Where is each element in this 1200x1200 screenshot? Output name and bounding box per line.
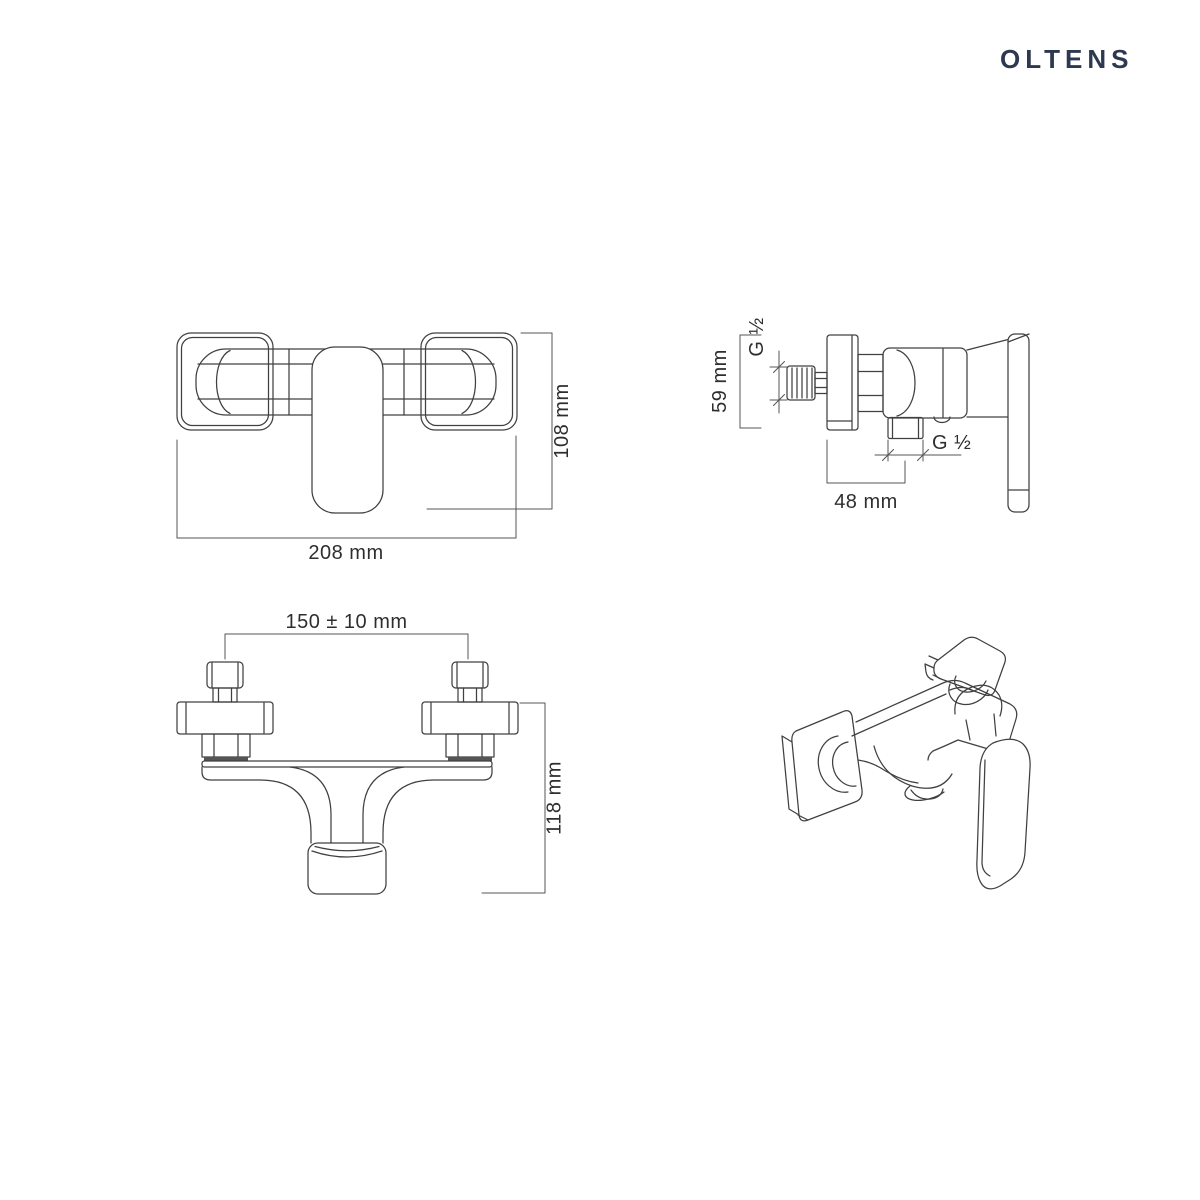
isometric-view-drawing: [740, 615, 1080, 925]
top-view-drawing: 150 ± 10 mm 118 mm: [150, 595, 600, 935]
front-height-label: 108 mm: [551, 383, 573, 458]
top-faucet-outline: [177, 662, 518, 894]
top-depth-label: 118 mm: [544, 761, 566, 835]
front-faucet-outline: [177, 333, 517, 513]
side-view-drawing: 59 mm G ½ G ½ 48 mm: [680, 295, 1080, 560]
side-depth-label: 48 mm: [834, 491, 898, 513]
top-dimensions: 150 ± 10 mm 118 mm: [225, 611, 566, 893]
side-dimensions: 59 mm G ½ G ½ 48 mm: [709, 317, 971, 513]
front-view-drawing: 208 mm 108 mm: [150, 295, 610, 585]
side-faucet-outline: [787, 334, 1029, 512]
brand-logo: OLTENS: [1000, 44, 1134, 75]
front-width-label: 208 mm: [308, 542, 383, 564]
iso-faucet-outline: [782, 637, 1030, 889]
side-inlet-thread-label: G ½: [746, 317, 768, 356]
side-height-label: 59 mm: [709, 349, 731, 413]
top-span-label: 150 ± 10 mm: [285, 611, 407, 633]
product-dimension-sheet: OLTENS 208 mm 108 mm: [0, 0, 1200, 1200]
side-outlet-thread-label: G ½: [932, 432, 971, 454]
front-handle-lever: [312, 347, 383, 513]
side-handle-lever: [1008, 334, 1029, 512]
